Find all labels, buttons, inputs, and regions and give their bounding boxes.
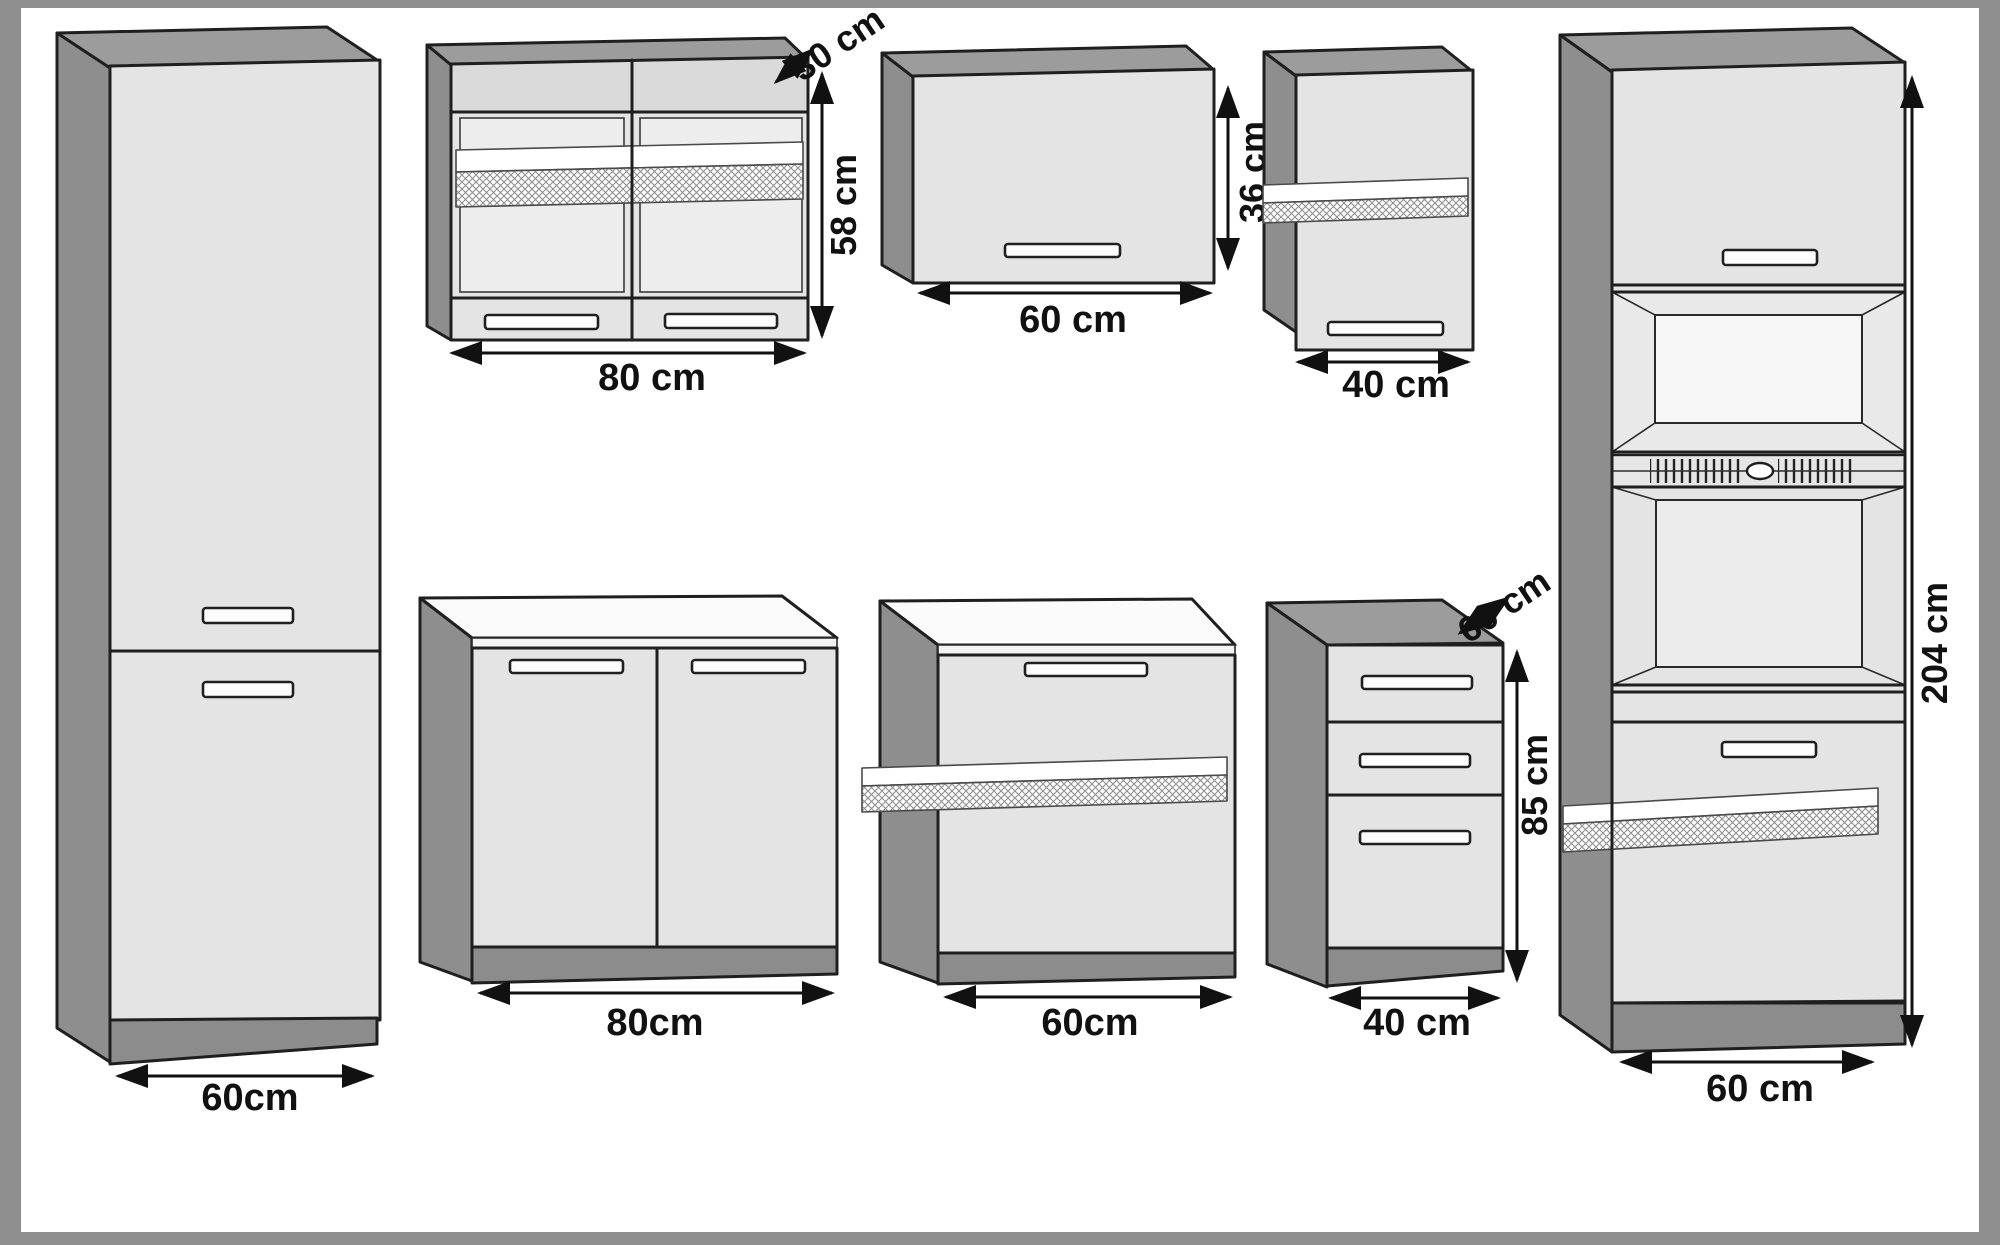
dim-label: 80cm [606, 1002, 703, 1044]
cabinet-side-panel [427, 45, 451, 340]
oven-inner-panel [1656, 500, 1862, 667]
cabinet-side-panel [1560, 35, 1612, 1052]
dim-label: 40 cm [1342, 364, 1450, 406]
cabinet-side-panel [57, 33, 110, 1062]
door-handle [485, 315, 598, 329]
door-top-rail [451, 57, 808, 112]
door-handle [203, 682, 293, 697]
worktop [880, 599, 1235, 645]
drawer-handle [1362, 676, 1472, 689]
cabinet-plinth [938, 953, 1235, 984]
cabinet-wall-40 [1263, 47, 1473, 350]
cabinet-side-panel [882, 53, 913, 283]
cabinet-side-panel [1267, 603, 1327, 987]
cabinet-tall-oven [1560, 28, 1905, 1052]
cabinet-base-60 [862, 599, 1235, 984]
cabinet-wall-80-glass [427, 38, 808, 340]
kitchen-cabinet-diagram: 60cm 30 cm 58 cm 80 cm 36 cm [0, 0, 2000, 1245]
door-handle [665, 314, 777, 328]
dim-label: 58 cm [823, 154, 864, 256]
door-handle [1723, 250, 1817, 265]
drawer-handle [1722, 742, 1816, 757]
door-handle [692, 660, 805, 673]
door-handle [1005, 244, 1120, 257]
dim-label: 40 cm [1363, 1002, 1471, 1044]
cabinet-tall-larder [57, 27, 380, 1064]
dim-label: 60cm [1041, 1002, 1138, 1044]
cabinet-doors [472, 648, 837, 947]
shelf-hatched-edge [456, 164, 803, 207]
door-handle [1025, 663, 1147, 676]
niche-back-panel [1655, 315, 1862, 423]
drawer-handle [1360, 831, 1470, 844]
cabinet-drawer-40 [1267, 600, 1503, 987]
drawer-handle [1360, 754, 1470, 767]
door-handle [203, 608, 293, 623]
dim-label: 85 cm [1514, 734, 1555, 836]
dim-label: 60cm [201, 1077, 298, 1119]
cabinet-doors [110, 60, 380, 1020]
cabinet-side-panel [420, 598, 472, 981]
dim-label: 60 cm [1019, 299, 1127, 341]
door-handle [1328, 322, 1443, 335]
dim-label: 204 cm [1914, 582, 1955, 704]
vent-knob [1747, 463, 1773, 479]
cabinet-plinth [1612, 1001, 1905, 1052]
dim-label: 60 cm [1706, 1068, 1814, 1110]
worktop [420, 596, 837, 638]
cabinet-wall-60-flap [882, 46, 1214, 283]
dim-label: 80 cm [598, 357, 706, 399]
door-handle [510, 660, 623, 673]
cabinet-base-80 [420, 596, 837, 983]
